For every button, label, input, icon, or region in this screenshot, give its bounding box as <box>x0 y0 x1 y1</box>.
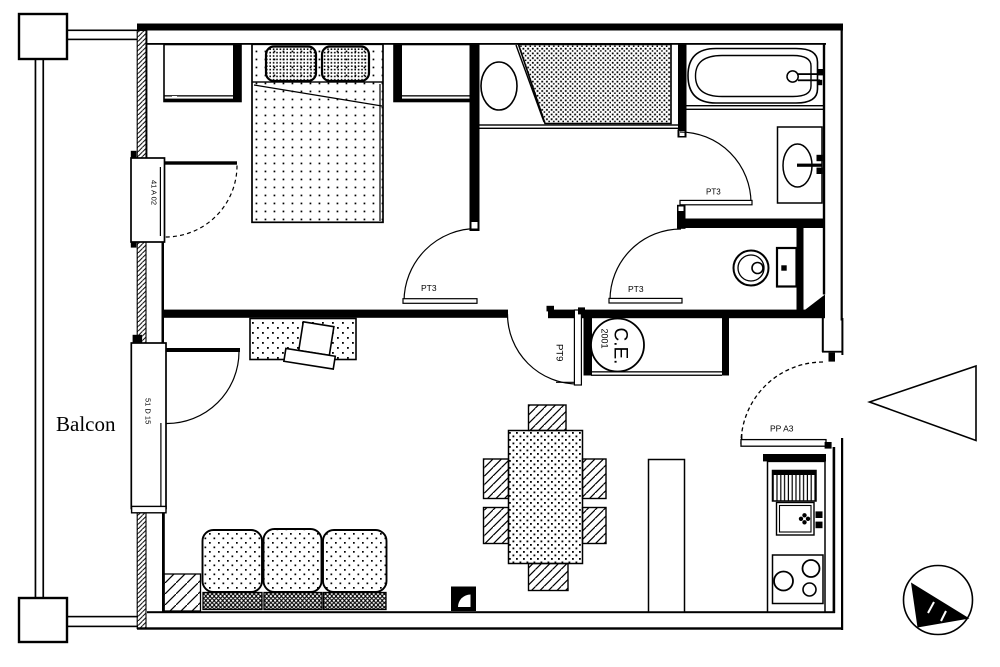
svg-text:Balcon: Balcon <box>56 412 116 436</box>
svg-text:PP A3: PP A3 <box>770 424 794 434</box>
svg-text:41 A 02: 41 A 02 <box>150 180 159 205</box>
svg-text:2001: 2001 <box>600 329 610 349</box>
svg-text:PT3: PT3 <box>628 284 644 294</box>
svg-text:C.E.: C.E. <box>610 328 631 365</box>
svg-text:PT9: PT9 <box>554 344 565 361</box>
svg-text:51 D 15: 51 D 15 <box>144 398 153 424</box>
svg-text:PT3: PT3 <box>421 283 437 293</box>
svg-text:PT3: PT3 <box>706 188 721 197</box>
